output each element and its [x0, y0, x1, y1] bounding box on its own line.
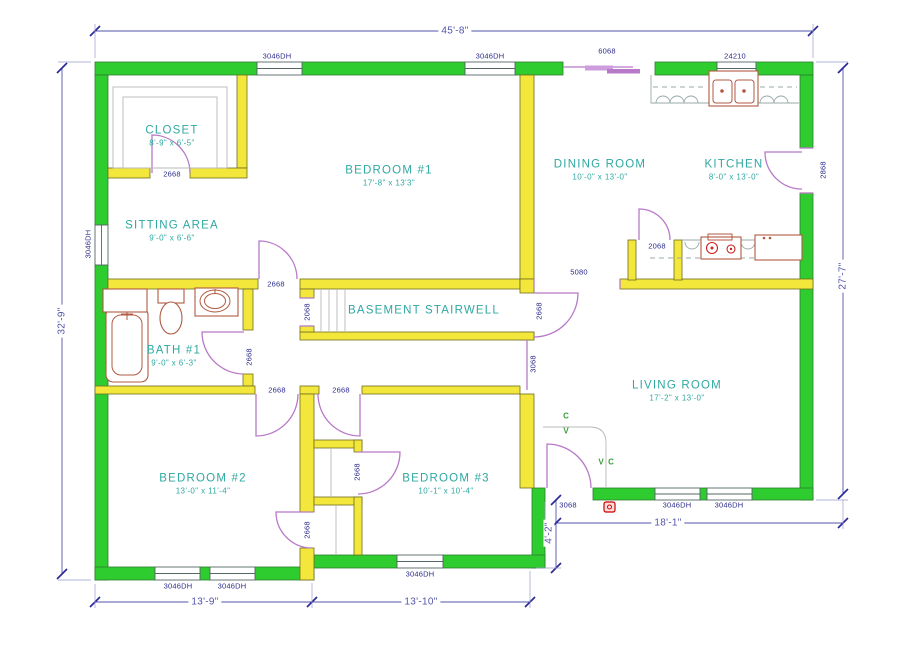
floor-plan-canvas: CLOSET8'-9" x 6'-5"SITTING AREA9'-0" x 6…: [0, 0, 900, 646]
tag-opening-dining: 5080: [570, 268, 588, 277]
tag-door-bath: 2668: [245, 348, 254, 366]
room-name: BEDROOM #1: [345, 163, 432, 178]
tag-slider-top: 6068: [598, 47, 616, 56]
room-size: 10'-1" x 10'-4": [402, 486, 489, 496]
tag-door-bedroom3: 2668: [332, 386, 350, 395]
dimension-entry-depth: 4'-2": [544, 519, 555, 546]
tag-window-kitchen: 24210: [724, 52, 746, 61]
room-name: KITCHEN: [705, 157, 764, 172]
tag-door-bedroom1: 2668: [267, 280, 285, 289]
tag-door-pantry: 2068: [648, 242, 666, 251]
room-label-closet: CLOSET8'-9" x 6'-5": [145, 123, 198, 148]
tag-window-bed2-2: 3046DH: [218, 582, 247, 591]
room-size: 8'-0" x 13'-0": [705, 172, 764, 182]
room-label-sitting: SITTING AREA9'-0" x 6'-6": [125, 218, 219, 243]
tag-door-bedroom2: 2668: [268, 386, 286, 395]
closet-marker-c2: C: [608, 458, 614, 467]
closet-marker-v2: V: [598, 458, 603, 467]
tag-window-bed2-1: 3046DH: [164, 582, 193, 591]
labels-layer: CLOSET8'-9" x 6'-5"SITTING AREA9'-0" x 6…: [0, 0, 900, 646]
room-label-living: LIVING ROOM17'-2" x 13'-0": [632, 378, 722, 403]
tag-window-bed3: 3046DH: [406, 570, 435, 579]
room-label-bedroom1: BEDROOM #117'-8" x 13'3": [345, 163, 432, 188]
room-label-bedroom2: BEDROOM #213'-0" x 11'-4": [159, 471, 246, 496]
room-name: BEDROOM #3: [402, 471, 489, 486]
room-label-bedroom3: BEDROOM #310'-1" x 10'-4": [402, 471, 489, 496]
tag-opening-hall: 3068: [529, 355, 538, 373]
room-size: 9'-0" x 6'-6": [125, 233, 219, 243]
room-name: SITTING AREA: [125, 218, 219, 233]
tag-opening-stairs: 2068: [303, 303, 312, 321]
room-label-kitchen: KITCHEN8'-0" x 13'-0": [705, 157, 764, 182]
tag-window-top-1: 3046DH: [263, 52, 292, 61]
tag-window-living-1: 3046DH: [663, 501, 692, 510]
tag-door-closet-bed2: 2668: [303, 521, 312, 539]
room-name: BATH #1: [147, 343, 201, 358]
room-size: 17'-2" x 13'-0": [632, 393, 722, 403]
dimension-overall-width: 45'-8": [438, 26, 471, 37]
tag-window-left: 3046DH: [84, 230, 93, 259]
tag-window-living-2: 3046DH: [715, 501, 744, 510]
tag-door-closet-bed3: 2668: [353, 463, 362, 481]
tag-door-closet1: 2668: [163, 170, 181, 179]
dimension-overall-left: 32'-9": [57, 304, 68, 337]
tag-door-kitchen-side: 2868: [819, 161, 828, 179]
room-size: 10'-0" x 13'-0": [554, 172, 646, 182]
tag-door-front: 3068: [559, 501, 577, 510]
room-name: BEDROOM #2: [159, 471, 246, 486]
room-name: LIVING ROOM: [632, 378, 722, 393]
tag-window-top-2: 3046DH: [476, 52, 505, 61]
dimension-bottom-left: 13'-9": [188, 597, 221, 608]
room-label-stairwell: BASEMENT STAIRWELL: [348, 304, 500, 319]
room-label-bath1: BATH #19'-0" x 6'-3": [147, 343, 201, 368]
closet-marker-c1: C: [563, 412, 569, 421]
room-label-dining: DINING ROOM10'-0" x 13'-0": [554, 157, 646, 182]
room-size: 13'-0" x 11'-4": [159, 486, 246, 496]
room-size: 17'-8" x 13'3": [345, 178, 432, 188]
dimension-bottom-mid: 13'-10": [401, 597, 440, 608]
room-size: 8'-9" x 6'-5": [145, 138, 198, 148]
tag-door-stairs: 2668: [535, 302, 544, 320]
dimension-overall-right: 27'-7": [838, 259, 849, 292]
room-name: CLOSET: [145, 123, 198, 138]
room-name: DINING ROOM: [554, 157, 646, 172]
dimension-bottom-right: 18'-1": [651, 518, 684, 529]
room-size: 9'-0" x 6'-3": [147, 358, 201, 368]
room-name: BASEMENT STAIRWELL: [348, 304, 500, 319]
closet-marker-v1: V: [563, 427, 568, 436]
